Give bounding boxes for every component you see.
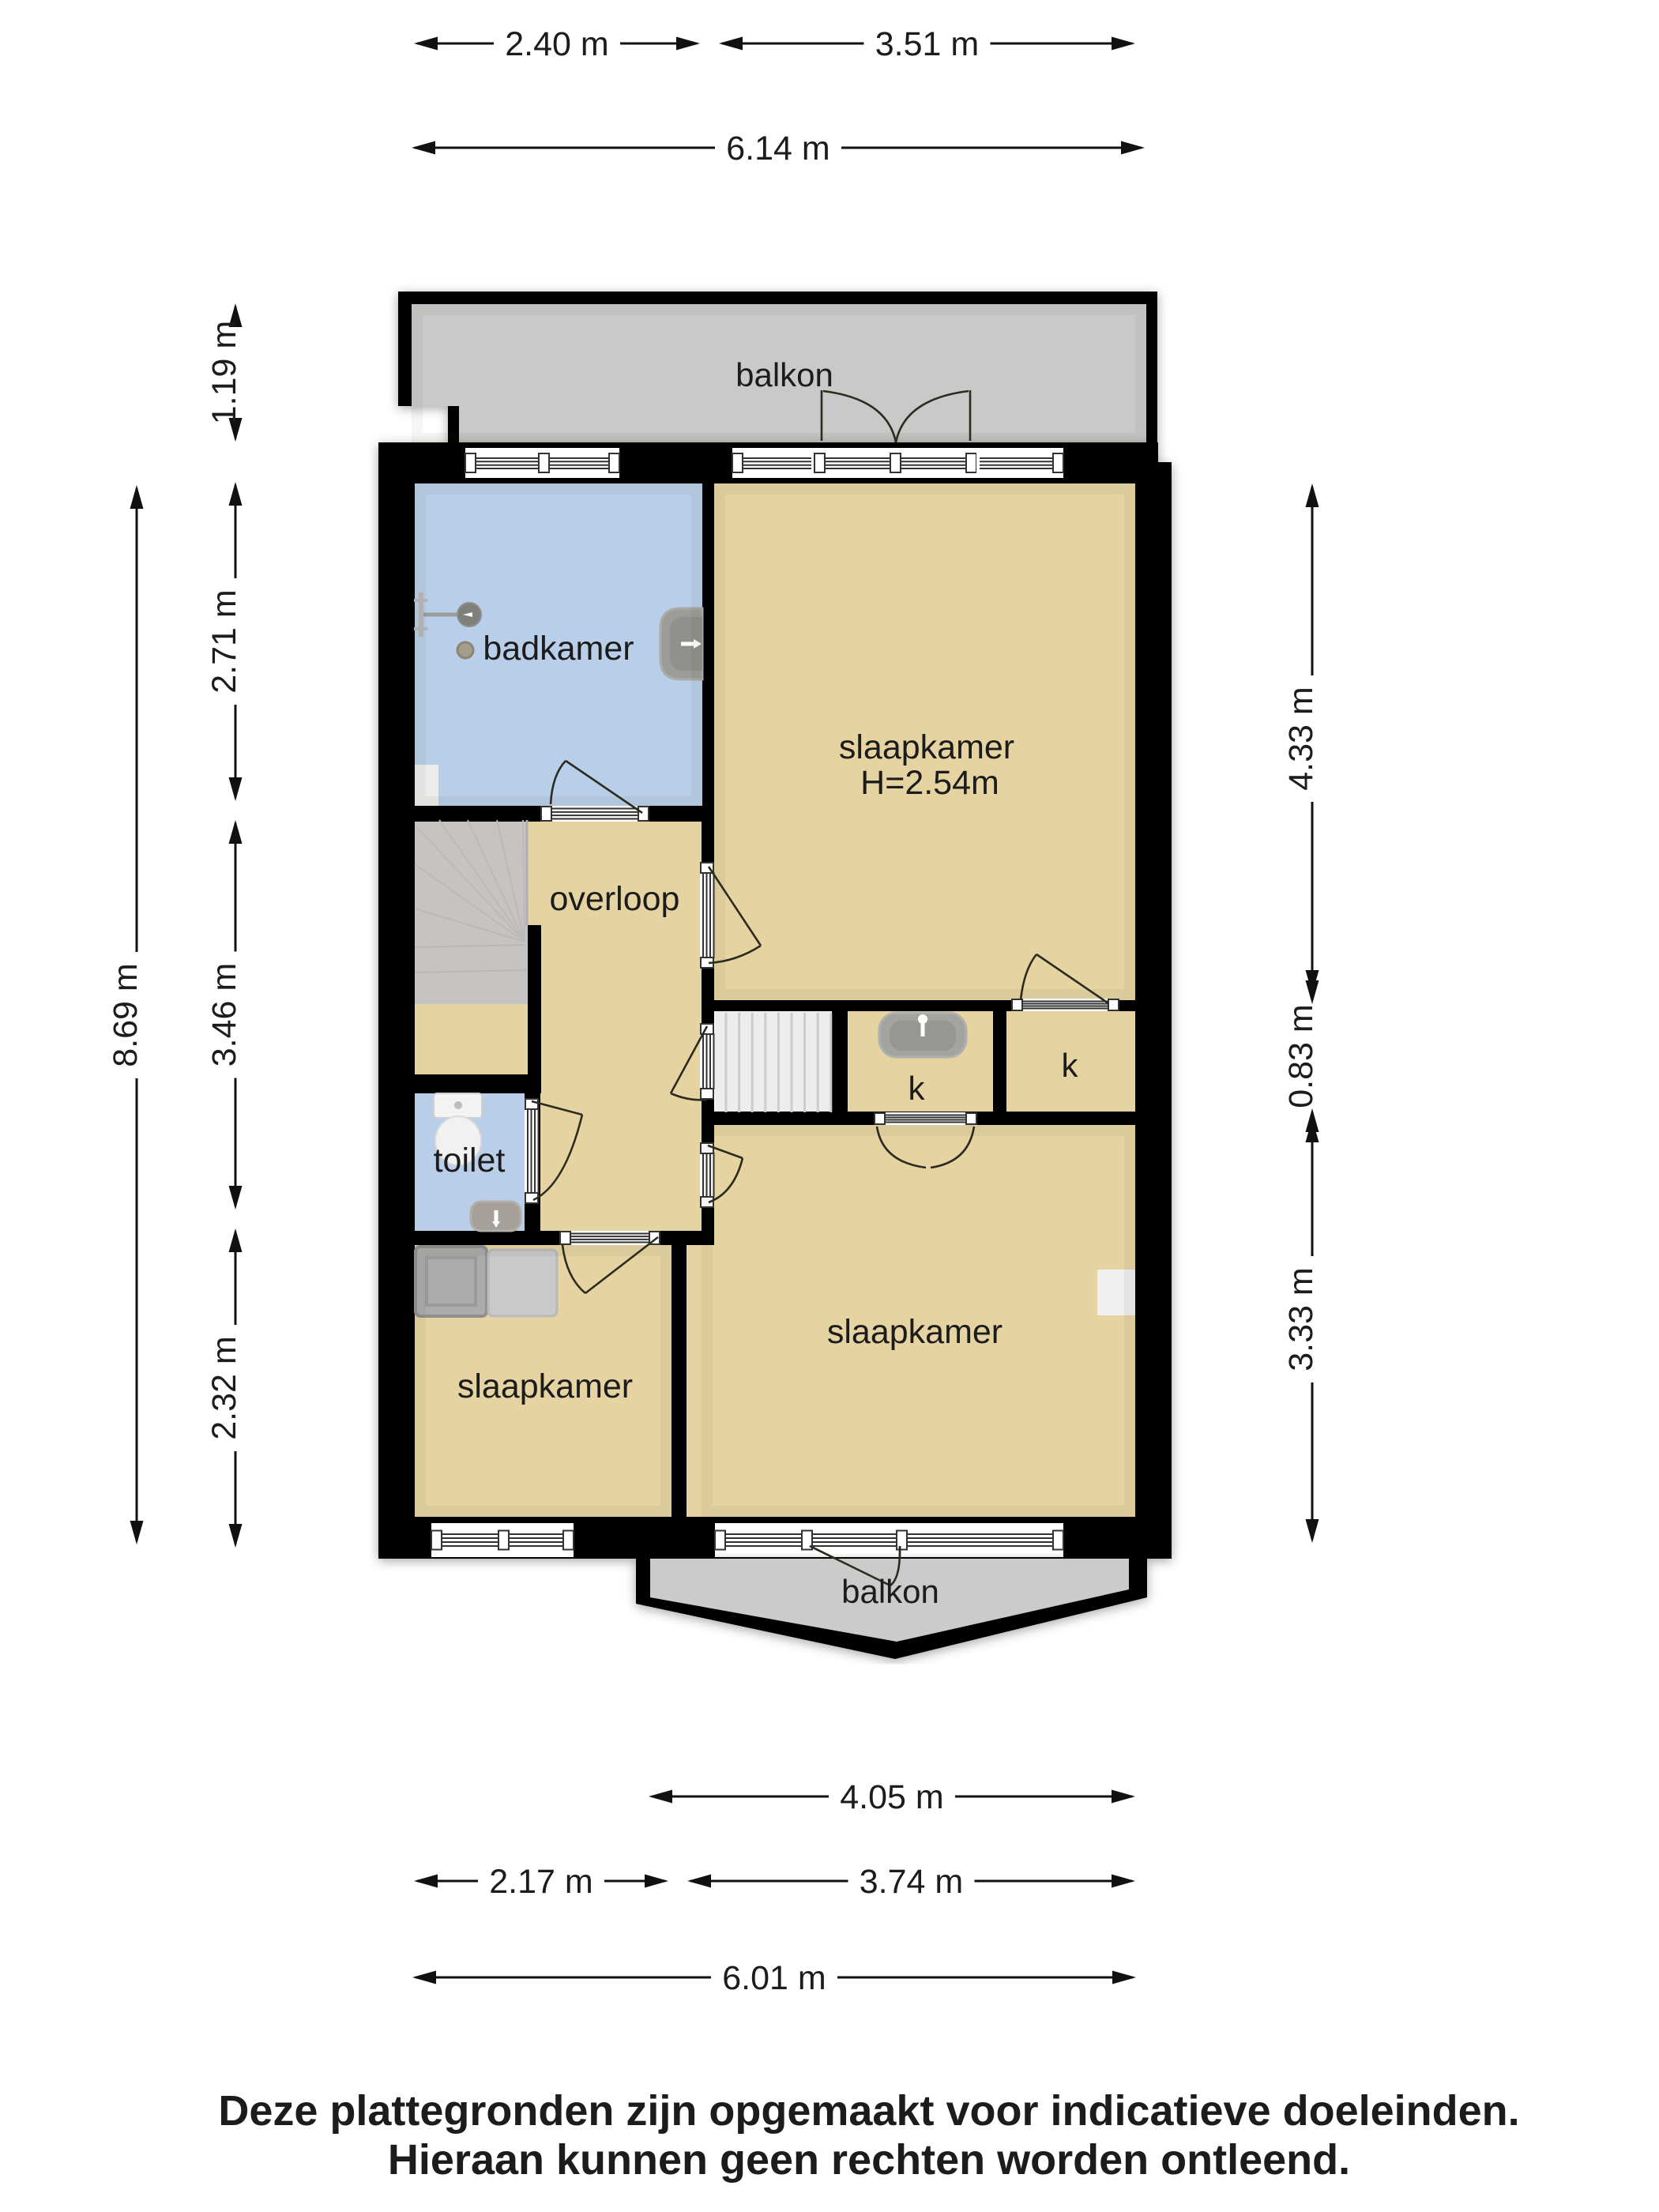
svg-text:3.46 m: 3.46 m (205, 963, 243, 1066)
svg-text:6.01 m: 6.01 m (722, 1959, 826, 1997)
svg-text:slaapkamer: slaapkamer (457, 1367, 633, 1405)
svg-text:k: k (908, 1070, 926, 1107)
svg-text:2.17 m: 2.17 m (489, 1863, 592, 1901)
svg-text:k: k (1062, 1047, 1079, 1084)
svg-text:H=2.54m: H=2.54m (860, 764, 999, 802)
svg-text:slaapkamer: slaapkamer (827, 1313, 1003, 1351)
svg-text:1.19 m: 1.19 m (205, 321, 243, 424)
svg-text:badkamer: badkamer (483, 630, 634, 668)
svg-text:8.69 m: 8.69 m (107, 963, 145, 1066)
svg-text:slaapkamer: slaapkamer (839, 728, 1014, 766)
svg-text:2.40 m: 2.40 m (505, 25, 608, 63)
svg-text:3.74 m: 3.74 m (860, 1863, 963, 1901)
svg-text:balkon: balkon (735, 356, 833, 393)
svg-text:Deze plattegronden zijn opgema: Deze plattegronden zijn opgemaakt voor i… (218, 2087, 1519, 2135)
svg-text:balkon: balkon (841, 1573, 939, 1610)
svg-text:4.33 m: 4.33 m (1282, 687, 1320, 790)
svg-text:3.33 m: 3.33 m (1282, 1267, 1320, 1371)
svg-text:toilet: toilet (434, 1142, 506, 1179)
svg-text:2.71 m: 2.71 m (205, 589, 243, 693)
svg-text:6.14 m: 6.14 m (726, 130, 829, 167)
svg-text:3.51 m: 3.51 m (875, 25, 979, 63)
svg-text:4.05 m: 4.05 m (840, 1778, 943, 1816)
svg-text:0.83 m: 0.83 m (1282, 1004, 1320, 1108)
svg-text:2.32 m: 2.32 m (205, 1336, 243, 1439)
svg-text:Hieraan kunnen geen rechten wo: Hieraan kunnen geen rechten worden ontle… (388, 2136, 1350, 2184)
svg-text:overloop: overloop (550, 880, 680, 918)
